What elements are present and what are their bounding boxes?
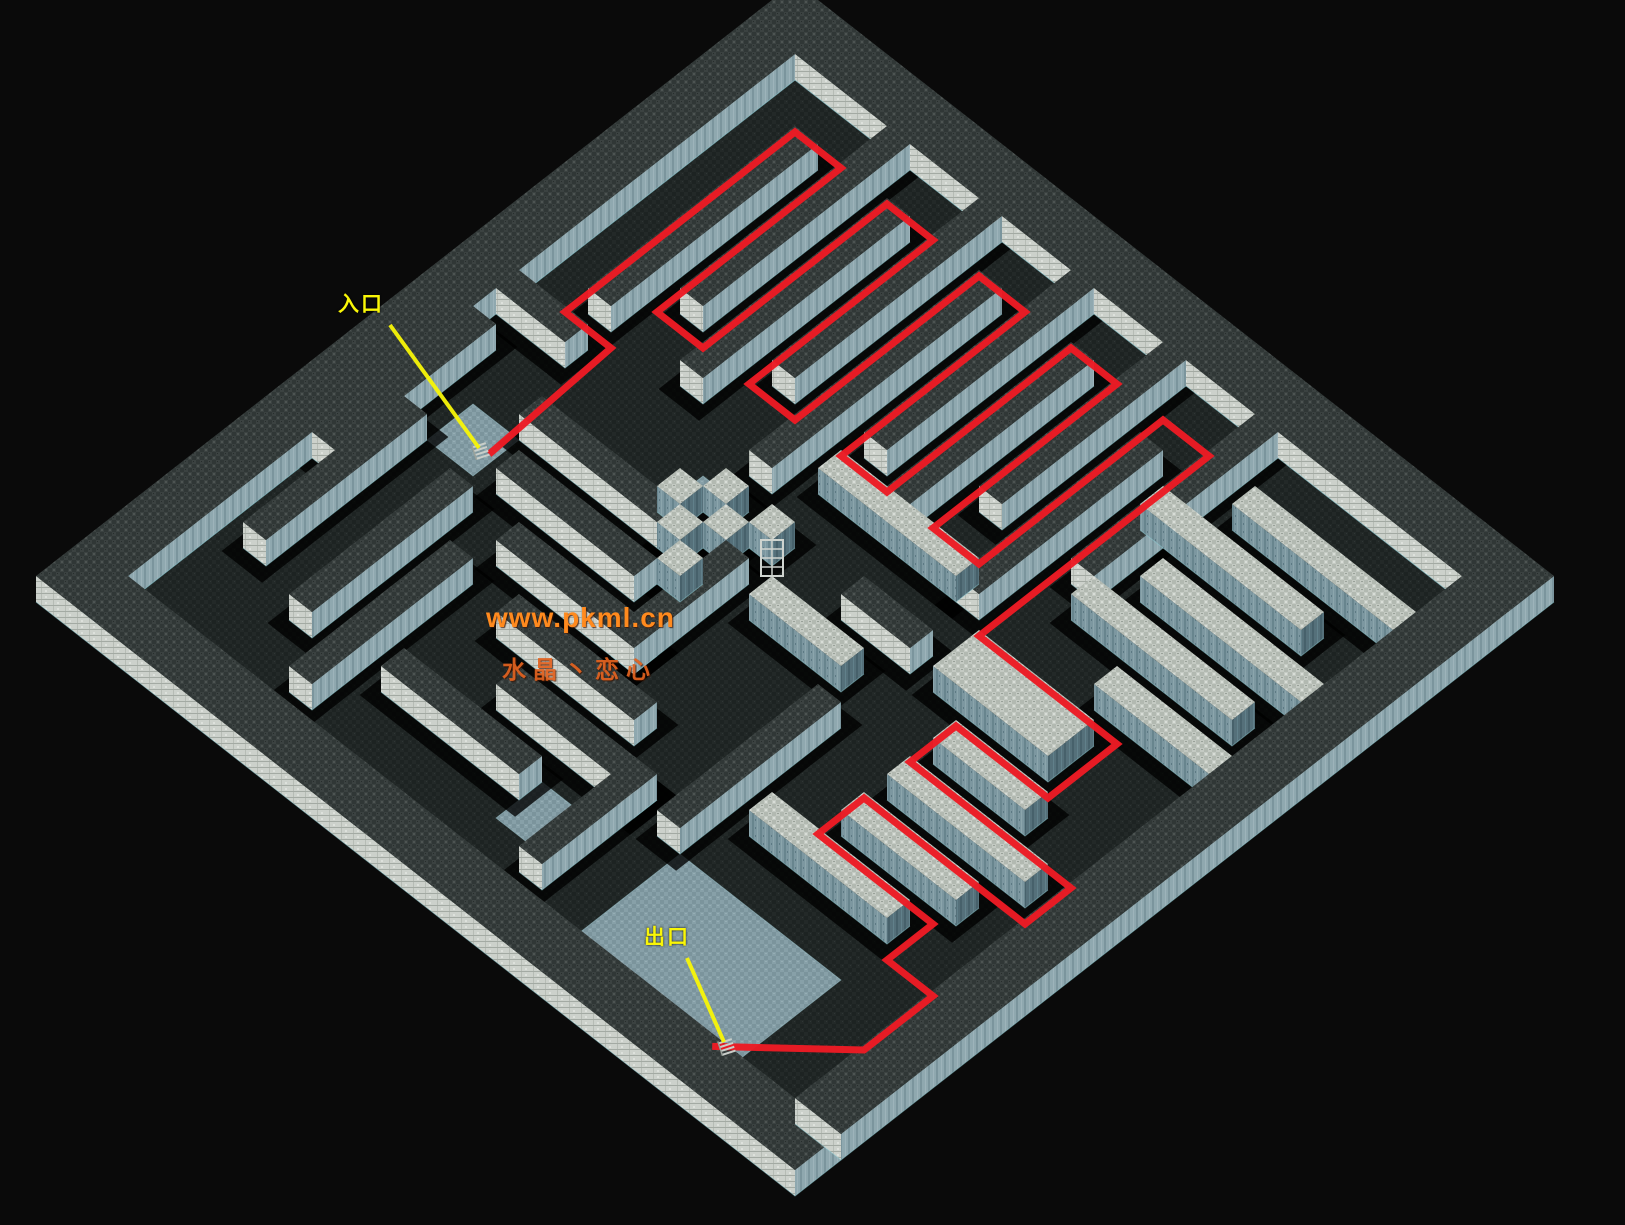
maze-iso-view (0, 0, 1625, 1225)
exit-label: 出口 (644, 921, 690, 951)
maze-map-screenshot: 入口 出口 www.pkml.cn 水晶丶恋心 (0, 0, 1625, 1225)
watermark-author: 水晶丶恋心 (502, 650, 657, 685)
watermark-url: www.pkml.cn (486, 602, 675, 634)
entrance-label: 入口 (338, 288, 384, 318)
